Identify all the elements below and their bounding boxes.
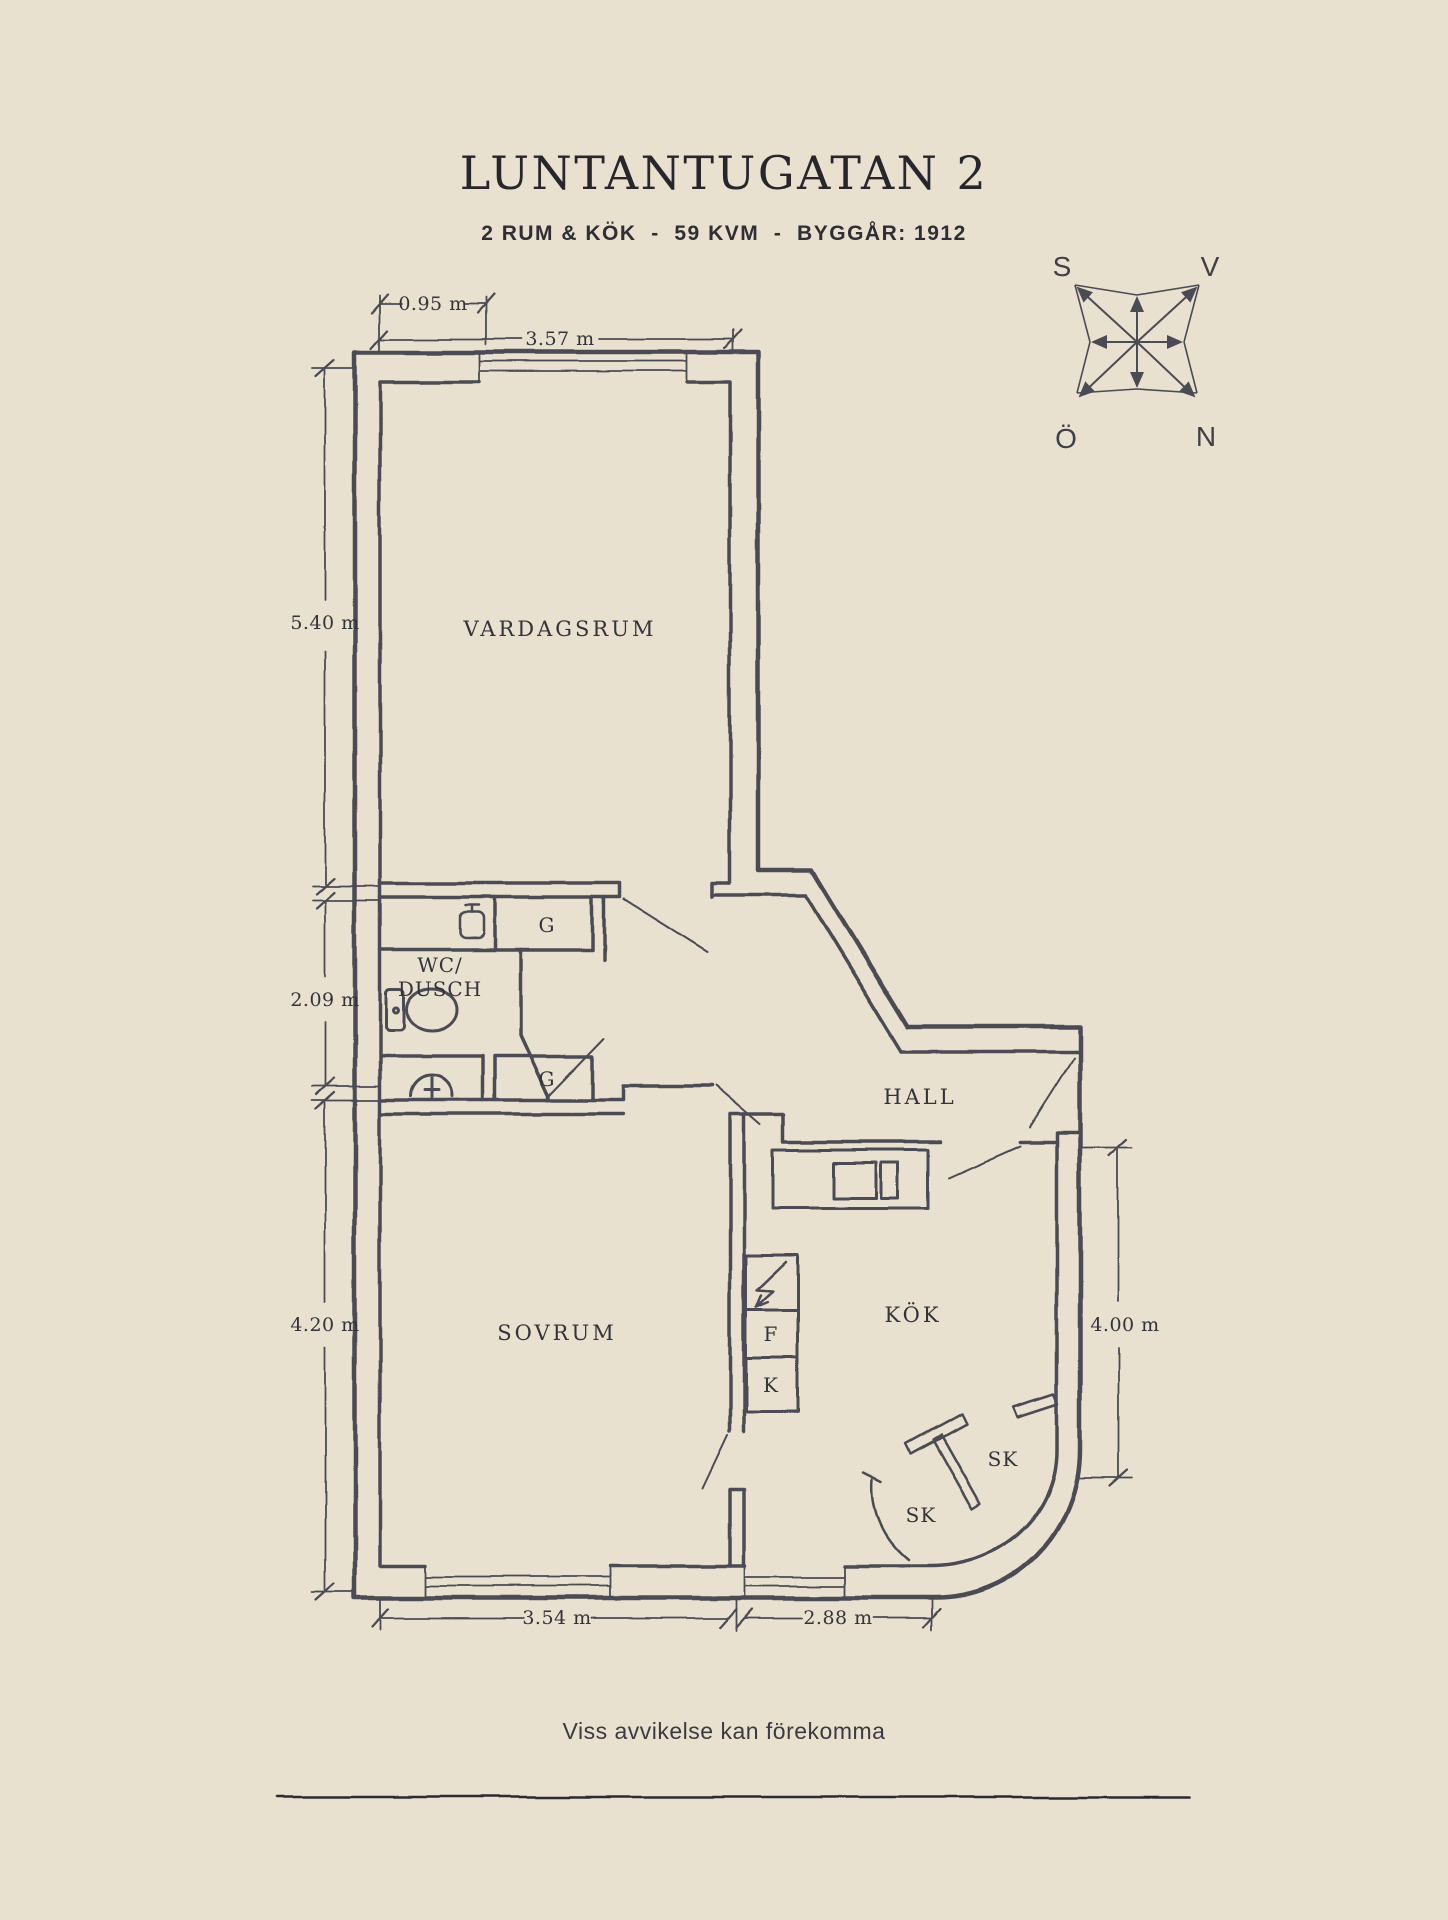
window-glazing [425,352,845,1596]
hall-label: HALL [883,1085,956,1109]
dim-right-kitchen: 4.00 m [1090,1314,1159,1336]
compass-label-v: V [1201,251,1220,282]
cabinet-right-label: SK [988,1447,1019,1471]
stove-icon [746,1255,798,1310]
dim-left-living: 5.40 m [290,612,359,634]
bedroom-label: SOVRUM [497,1321,616,1345]
compass-label-n: N [1196,421,1216,452]
floorplan-page: LUNTANTUGATAN 2 2 RUM & KÖK - 59 KVM - B… [0,0,1448,1920]
cabinet-door-arc [864,1473,908,1560]
compass-label-s: S [1053,251,1072,282]
wardrobe-lower-label: G [539,1067,556,1091]
freezer-label: K [763,1373,779,1397]
wc-small-sink-icon [460,905,484,938]
kitchen-label: KÖK [884,1302,941,1327]
living-room-label: VARDAGSRUM [463,617,657,641]
dim-left-bath: 2.09 m [290,989,359,1011]
dim-top-width: 3.57 m [525,328,594,350]
dim-left-bedroom: 4.20 m [290,1314,359,1336]
floorplan-drawing: S V Ö N VARDAGSRUM SOVRUM KÖK HALL WC/ D… [0,0,1448,1920]
compass-label-o: Ö [1055,423,1077,454]
bathroom-label-line1: WC/ [417,953,463,977]
cabinet-partitions [906,1394,1058,1509]
bathroom-label-line2: DUSCH [398,977,482,1001]
exterior-walls [355,352,1080,1598]
dim-bottom-bedroom: 3.54 m [522,1607,591,1629]
cabinet-left-label: SK [906,1503,937,1527]
door-swings [548,899,1074,1489]
dim-bottom-kitchen: 2.88 m [803,1607,872,1629]
compass-icon [1075,285,1199,396]
dim-top-window: 0.95 m [398,293,467,315]
fridge-label: F [764,1322,779,1346]
kitchen-sink-icon [772,1150,928,1208]
wardrobe-upper-label: G [539,913,556,937]
basin-icon [410,1075,452,1098]
